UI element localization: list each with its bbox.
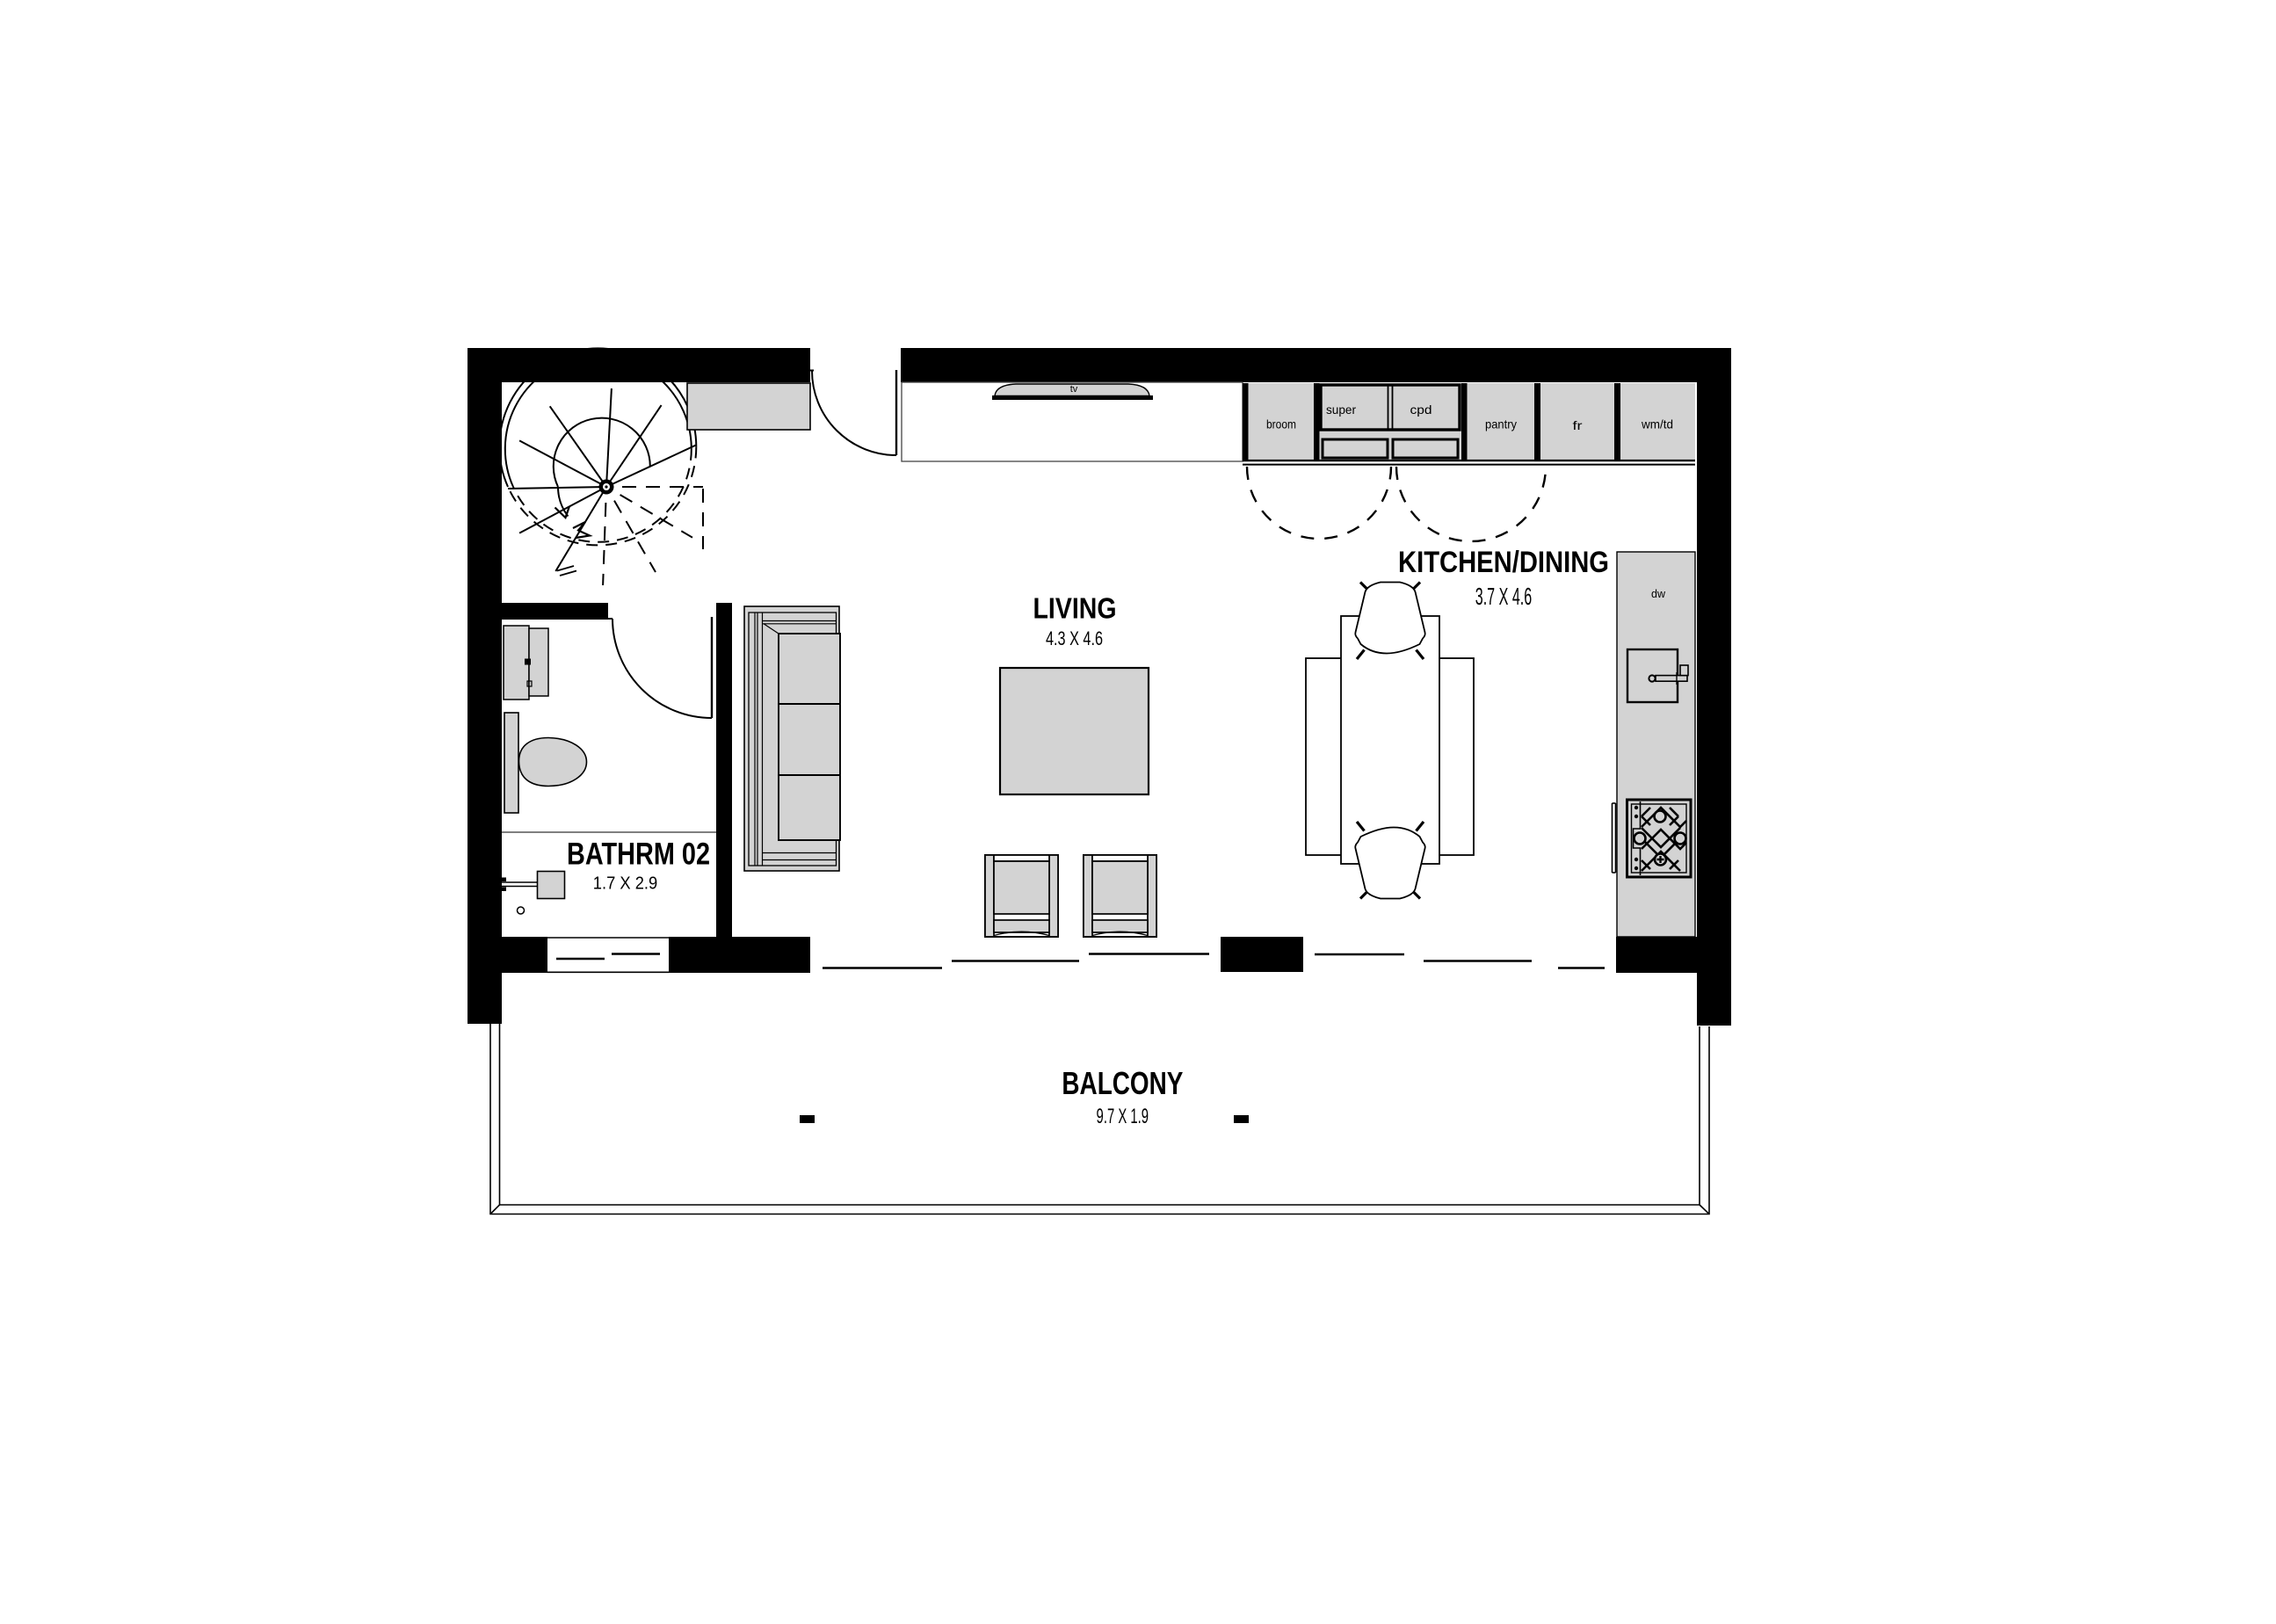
svg-text:BATHRM 02: BATHRM 02 <box>567 837 710 872</box>
svg-text:LIVING: LIVING <box>1033 592 1117 625</box>
svg-text:cpd: cpd <box>1410 402 1432 417</box>
svg-text:4.3 X 4.6: 4.3 X 4.6 <box>1046 627 1103 649</box>
svg-text:tv: tv <box>1070 384 1078 395</box>
svg-text:dw: dw <box>1651 587 1666 600</box>
svg-text:fr: fr <box>1573 418 1583 432</box>
svg-text:1.7 X 2.9: 1.7 X 2.9 <box>593 874 658 894</box>
svg-text:3.7 X 4.6: 3.7 X 4.6 <box>1475 583 1533 610</box>
svg-text:pantry: pantry <box>1485 417 1517 431</box>
svg-text:9.7 X 1.9: 9.7 X 1.9 <box>1097 1105 1149 1128</box>
svg-text:super: super <box>1326 402 1356 417</box>
svg-text:KITCHEN/DINING: KITCHEN/DINING <box>1398 546 1609 579</box>
svg-text:BALCONY: BALCONY <box>1062 1065 1183 1101</box>
svg-text:broom: broom <box>1266 417 1296 431</box>
svg-text:wm/td: wm/td <box>1641 417 1673 431</box>
